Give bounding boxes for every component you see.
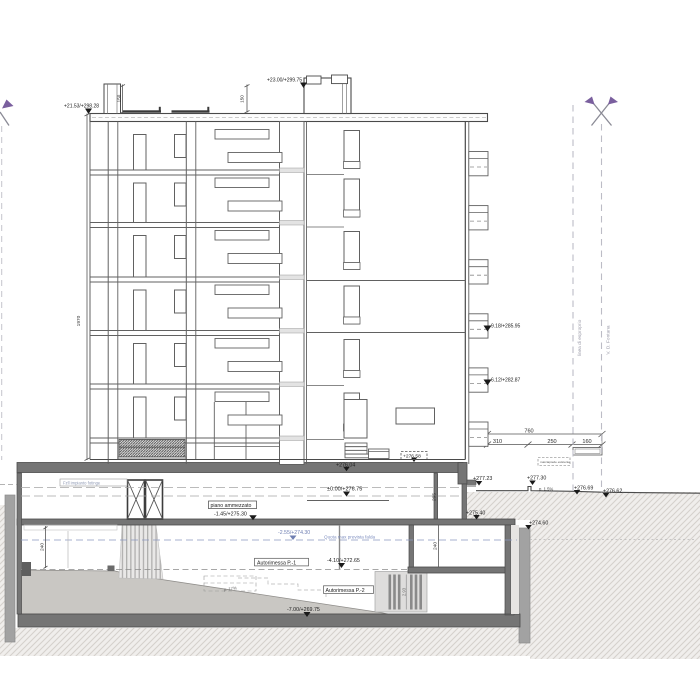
- svg-text:2.93: 2.93: [402, 587, 407, 596]
- svg-text:piano ammezzato: piano ammezzato: [211, 503, 252, 509]
- svg-text:250: 250: [547, 439, 556, 445]
- svg-text:240: 240: [40, 543, 46, 551]
- svg-text:760: 760: [524, 428, 533, 434]
- svg-text:+21.53/+298.28: +21.53/+298.28: [64, 104, 99, 110]
- svg-text:-2.55/+274.30: -2.55/+274.30: [278, 530, 310, 536]
- svg-text:V. D. Fontana: V. D. Fontana: [606, 325, 612, 354]
- svg-text:Fzll impianto fotinge: Fzll impianto fotinge: [63, 480, 101, 485]
- svg-text:150: 150: [240, 95, 245, 103]
- svg-text:6.12/+282.87: 6.12/+282.87: [491, 378, 521, 384]
- svg-text:Quota max prevista falda: Quota max prevista falda: [324, 535, 376, 540]
- svg-text:+277.23: +277.23: [473, 476, 492, 482]
- svg-text:+274.60: +274.60: [529, 521, 548, 527]
- svg-text:Autorimessa P.-1: Autorimessa P.-1: [257, 560, 296, 566]
- svg-text:-7.00/+269.75: -7.00/+269.75: [287, 607, 320, 613]
- svg-text:-1.45/+275.30: -1.45/+275.30: [214, 512, 247, 518]
- svg-text:1970: 1970: [76, 315, 82, 326]
- svg-text:Autorimessa P.-2: Autorimessa P.-2: [326, 588, 365, 594]
- svg-text:linea di esproprio: linea di esproprio: [577, 319, 583, 356]
- svg-text:+23.00/+299.75: +23.00/+299.75: [267, 78, 302, 84]
- svg-text:marciapiede esistente: marciapiede esistente: [540, 460, 570, 464]
- svg-text:295: 295: [432, 493, 438, 501]
- svg-text:240: 240: [433, 542, 439, 550]
- svg-text:p. 1.5%: p. 1.5%: [539, 486, 553, 491]
- svg-text:160: 160: [582, 439, 591, 445]
- svg-text:310: 310: [493, 439, 502, 445]
- svg-text:150: 150: [117, 94, 122, 102]
- svg-text:9.18/+285.95: 9.18/+285.95: [491, 324, 521, 330]
